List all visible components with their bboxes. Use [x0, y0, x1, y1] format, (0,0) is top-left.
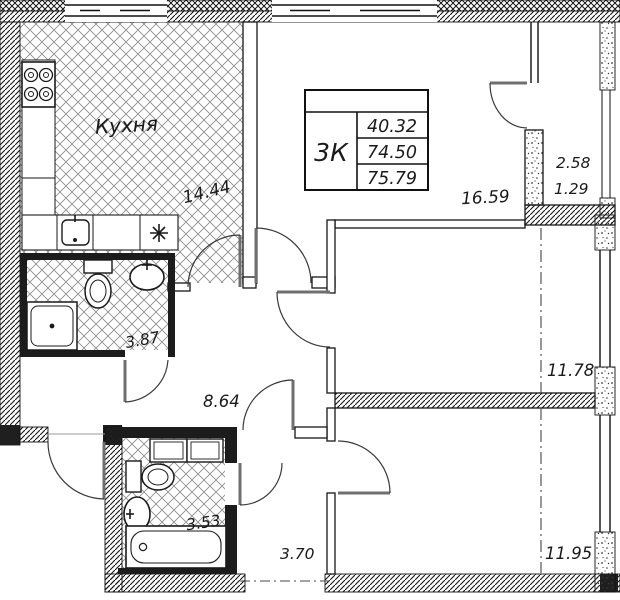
toilet-icon — [84, 260, 112, 308]
hall-wall — [327, 348, 335, 393]
kitchen-name-label: Кухня — [94, 111, 158, 138]
wall-segment — [595, 532, 615, 592]
wall-segment — [20, 427, 48, 442]
stove-icon — [22, 62, 55, 107]
spec-value: 75.79 — [367, 169, 417, 189]
bedroom-bottom-window-icon — [600, 415, 610, 532]
wall-segment — [295, 427, 327, 438]
wall-end-block — [0, 425, 20, 445]
wall-segment — [325, 574, 620, 592]
spec-value: 74.50 — [367, 143, 417, 163]
wall-segment — [105, 574, 245, 592]
shower-tray-icon — [27, 302, 77, 350]
loggia-wall — [600, 22, 615, 90]
hall-wall — [327, 220, 335, 293]
wall-segment — [0, 22, 20, 445]
bedrooms-wall — [335, 393, 595, 408]
floor-plan: 3К 40.32 74.50 75.79 Кухня 14.44 16.59 2… — [0, 0, 620, 600]
living-area-label: 16.59 — [461, 187, 511, 210]
spec-table: 3К 40.32 74.50 75.79 — [305, 90, 428, 190]
spec-value: 40.32 — [367, 117, 417, 137]
corridor-wall — [327, 493, 335, 574]
bedroom-bottom-door-icon — [338, 441, 390, 493]
bathroom-wall — [20, 253, 175, 260]
kitchen-sink-icon — [62, 215, 89, 245]
bathroom-wall — [168, 253, 175, 357]
cabinet-icon — [187, 439, 223, 462]
corridor-area-label: 3.70 — [280, 545, 315, 563]
wall-segment — [595, 367, 615, 415]
flat-type-label: 3К — [314, 138, 349, 167]
bathroom-door-icon — [125, 360, 168, 402]
washing-machine-icon — [150, 439, 187, 462]
entrance-door-icon — [48, 434, 105, 499]
loggia-door-icon — [490, 83, 527, 128]
bathroom-small-wall — [118, 568, 237, 574]
hall-wall — [327, 408, 335, 441]
corridor-door-icon — [243, 380, 293, 430]
toilet-icon — [126, 461, 174, 492]
wall-segment — [243, 277, 256, 288]
bathtub-icon — [126, 526, 226, 568]
hallway-area-label: 8.64 — [203, 392, 240, 411]
bathroom-small-wall — [225, 505, 237, 574]
bathroom-small-wall — [112, 427, 237, 438]
wall-segment — [105, 427, 122, 592]
bedroom-top-door-icon — [277, 292, 330, 347]
bathroom-wall — [20, 253, 27, 357]
floor-plan-svg: 3К 40.32 74.50 75.79 Кухня 14.44 16.59 2… — [0, 0, 620, 600]
loggia-parapet — [525, 205, 615, 225]
loggia-area-label: 2.58 — [556, 154, 591, 172]
bathroom-wall — [20, 350, 125, 357]
bathroom-small-wall — [225, 438, 237, 463]
bedroom-top-window-icon — [600, 250, 610, 367]
loggia-door-window-icon — [531, 22, 538, 83]
bedroom-top-area-label: 11.78 — [547, 361, 594, 380]
living-door-icon — [256, 228, 311, 283]
loggia-coef-area-label: 1.29 — [554, 180, 589, 198]
living-bedroom-wall — [335, 220, 525, 228]
loggia-partition — [525, 130, 543, 205]
bedroom-bottom-area-label: 11.95 — [545, 544, 592, 563]
bathroom-small-door-icon — [240, 463, 282, 505]
